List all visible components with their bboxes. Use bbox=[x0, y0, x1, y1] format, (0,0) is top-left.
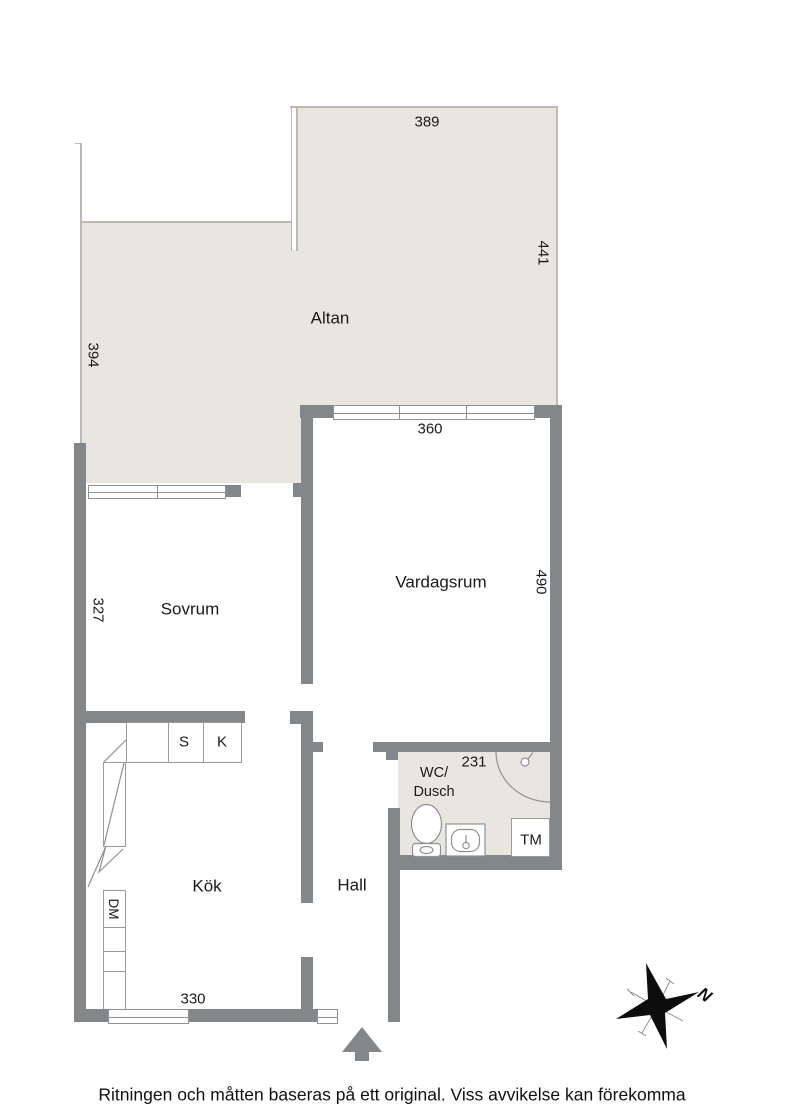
dimension-vardagsrum-right: 490 bbox=[534, 569, 549, 594]
fixtures-overlay: N bbox=[0, 0, 792, 1120]
label-tm-washing-machine: TM bbox=[520, 833, 542, 848]
shower-head-icon bbox=[521, 753, 533, 767]
sink-icon bbox=[446, 824, 485, 856]
toilet-icon bbox=[412, 805, 442, 857]
compass-north-label: N bbox=[694, 984, 716, 1007]
room-label-altan: Altan bbox=[311, 310, 350, 327]
room-label-vardagsrum: Vardagsrum bbox=[395, 574, 486, 591]
label-k-cabinet: K bbox=[217, 735, 227, 750]
room-label-wc-line2: Dusch bbox=[413, 785, 454, 800]
room-label-kok: Kök bbox=[192, 878, 221, 895]
label-dm-dishwasher: DM bbox=[106, 899, 120, 920]
room-label-wc-line1: WC/ bbox=[420, 766, 448, 781]
counter-chamfer-line bbox=[104, 740, 126, 762]
entrance-arrow-icon bbox=[342, 1027, 382, 1061]
dimension-altan-top: 389 bbox=[414, 115, 439, 130]
room-label-hall: Hall bbox=[337, 877, 366, 894]
tall-cabinet-diagonal bbox=[104, 763, 124, 845]
label-s-cabinet: S bbox=[179, 735, 189, 750]
room-label-sovrum: Sovrum bbox=[161, 601, 220, 618]
dimension-altan-right: 441 bbox=[536, 240, 551, 265]
dimension-sovrum-left: 327 bbox=[91, 597, 106, 622]
dimension-altan-left: 394 bbox=[86, 342, 101, 367]
compass-rose: N bbox=[616, 963, 716, 1049]
dimension-vardagsrum-top: 360 bbox=[417, 422, 442, 437]
dimension-wc: 231 bbox=[461, 755, 486, 770]
electric-zigzag-symbol bbox=[88, 846, 123, 887]
floor-plan: N Altan Sovrum Vardagsrum Kök Hall WC/ D… bbox=[0, 0, 792, 1120]
compass-star bbox=[616, 963, 699, 1049]
dimension-kok-bottom: 330 bbox=[180, 992, 205, 1007]
disclaimer-text: Ritningen och måtten baseras på ett orig… bbox=[98, 1086, 685, 1104]
